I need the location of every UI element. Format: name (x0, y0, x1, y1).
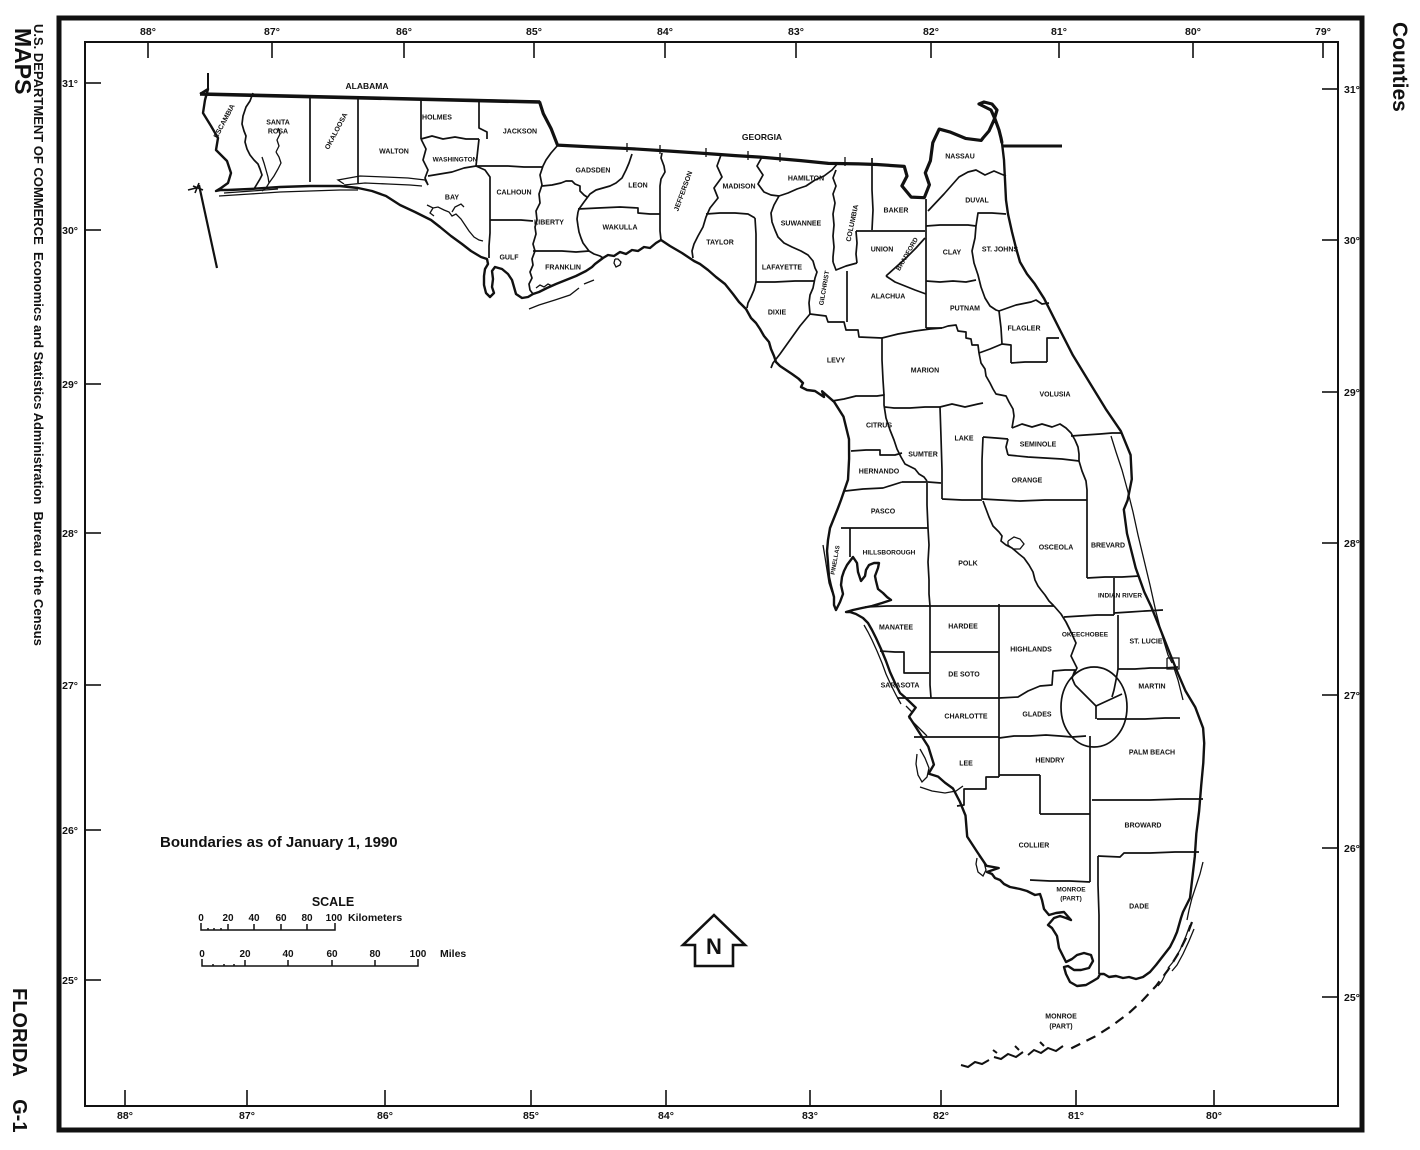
svg-text:WALTON: WALTON (379, 148, 409, 155)
svg-text:Kilometers: Kilometers (348, 912, 402, 924)
svg-text:87°: 87° (239, 1110, 255, 1122)
svg-text:86°: 86° (396, 26, 412, 38)
svg-text:HENDRY: HENDRY (1035, 757, 1065, 764)
svg-text:DADE: DADE (1129, 903, 1149, 910)
svg-text:N: N (706, 934, 722, 959)
svg-text:SUWANNEE: SUWANNEE (781, 220, 822, 227)
svg-text:LAKE: LAKE (954, 435, 973, 442)
svg-text:81°: 81° (1051, 26, 1067, 38)
svg-text:FLAGLER: FLAGLER (1007, 325, 1040, 332)
svg-text:84°: 84° (658, 1110, 674, 1122)
svg-text:20: 20 (239, 949, 251, 960)
svg-text:WASHINGTON: WASHINGTON (433, 156, 478, 163)
svg-text:UNION: UNION (871, 246, 894, 253)
svg-text:85°: 85° (526, 26, 542, 38)
svg-text:Boundaries as of January 1, 19: Boundaries as of January 1, 1990 (160, 834, 398, 851)
svg-text:80: 80 (301, 913, 313, 924)
svg-text:PASCO: PASCO (871, 508, 896, 515)
svg-text:(PART): (PART) (1049, 1023, 1072, 1030)
svg-text:GADSDEN: GADSDEN (575, 167, 610, 174)
svg-text:88°: 88° (117, 1110, 133, 1122)
svg-text:40: 40 (248, 913, 260, 924)
svg-text:ROSA: ROSA (268, 128, 288, 135)
svg-text:81°: 81° (1068, 1110, 1084, 1122)
svg-text:25°: 25° (1344, 992, 1360, 1004)
svg-text:TAYLOR: TAYLOR (706, 239, 734, 246)
svg-text:30°: 30° (62, 225, 78, 237)
svg-text:CALHOUN: CALHOUN (497, 189, 532, 196)
svg-text:20: 20 (222, 913, 234, 924)
svg-text:27°: 27° (62, 680, 78, 692)
svg-text:SARASOTA: SARASOTA (881, 682, 920, 689)
svg-text:OKEECHOBEE: OKEECHOBEE (1062, 631, 1109, 638)
svg-text:84°: 84° (657, 26, 673, 38)
svg-text:CLAY: CLAY (943, 249, 962, 256)
svg-text:88°: 88° (140, 26, 156, 38)
svg-text:85°: 85° (523, 1110, 539, 1122)
svg-text:LEON: LEON (628, 182, 647, 189)
svg-text:LIBERTY: LIBERTY (534, 219, 564, 226)
svg-text:ORANGE: ORANGE (1012, 477, 1043, 484)
svg-text:PALM BEACH: PALM BEACH (1129, 749, 1175, 756)
svg-text:SCALE: SCALE (312, 895, 354, 909)
svg-text:100: 100 (326, 913, 343, 924)
svg-text:SANTA: SANTA (266, 119, 290, 126)
svg-text:NASSAU: NASSAU (945, 153, 975, 160)
svg-text:86°: 86° (377, 1110, 393, 1122)
svg-text:GULF: GULF (499, 254, 519, 261)
svg-text:82°: 82° (923, 26, 939, 38)
svg-text:HIGHLANDS: HIGHLANDS (1010, 646, 1052, 653)
svg-text:ST. JOHNS: ST. JOHNS (982, 246, 1019, 253)
svg-text:0: 0 (199, 949, 205, 960)
svg-text:INDIAN RIVER: INDIAN RIVER (1098, 592, 1142, 599)
svg-text:80: 80 (369, 949, 381, 960)
svg-text:LEE: LEE (959, 760, 973, 767)
svg-text:MARION: MARION (911, 367, 939, 374)
svg-text:OSCEOLA: OSCEOLA (1039, 544, 1074, 551)
svg-text:82°: 82° (933, 1110, 949, 1122)
svg-text:31°: 31° (62, 78, 78, 90)
svg-text:DIXIE: DIXIE (768, 309, 787, 316)
svg-text:31°: 31° (1344, 84, 1360, 96)
svg-text:JACKSON: JACKSON (503, 128, 537, 135)
svg-text:27°: 27° (1344, 690, 1360, 702)
svg-text:0: 0 (198, 913, 204, 924)
svg-text:COLLIER: COLLIER (1019, 842, 1050, 849)
svg-text:80°: 80° (1206, 1110, 1222, 1122)
svg-text:BROWARD: BROWARD (1125, 822, 1162, 829)
svg-text:WAKULLA: WAKULLA (603, 224, 638, 231)
svg-text:CHARLOTTE: CHARLOTTE (944, 713, 987, 720)
svg-text:60: 60 (326, 949, 338, 960)
svg-text:DE SOTO: DE SOTO (948, 671, 980, 678)
svg-text:29°: 29° (1344, 387, 1360, 399)
svg-text:HARDEE: HARDEE (948, 623, 978, 630)
svg-text:ALABAMA: ALABAMA (346, 81, 389, 91)
svg-text:(PART): (PART) (1060, 895, 1082, 902)
svg-text:MANATEE: MANATEE (879, 624, 913, 631)
svg-text:87°: 87° (264, 26, 280, 38)
svg-text:HAMILTON: HAMILTON (788, 175, 824, 182)
svg-text:30°: 30° (1344, 235, 1360, 247)
svg-text:GLADES: GLADES (1022, 711, 1052, 718)
svg-text:PUTNAM: PUTNAM (950, 305, 980, 312)
svg-text:25°: 25° (62, 975, 78, 987)
svg-text:MONROE: MONROE (1056, 886, 1086, 893)
svg-text:LAFAYETTE: LAFAYETTE (762, 264, 803, 271)
svg-text:HERNANDO: HERNANDO (859, 468, 900, 475)
svg-text:DUVAL: DUVAL (965, 197, 989, 204)
svg-text:28°: 28° (1344, 538, 1360, 550)
svg-text:MARTIN: MARTIN (1138, 683, 1165, 690)
svg-text:MONROE: MONROE (1045, 1013, 1077, 1020)
svg-text:Miles: Miles (440, 948, 466, 960)
svg-text:CITRUS: CITRUS (866, 422, 892, 429)
svg-text:BAY: BAY (445, 194, 459, 201)
svg-text:MADISON: MADISON (722, 183, 755, 190)
svg-text:HOLMES: HOLMES (422, 114, 452, 121)
svg-text:79°: 79° (1315, 26, 1331, 38)
svg-text:FRANKLIN: FRANKLIN (545, 264, 581, 271)
svg-text:26°: 26° (1344, 843, 1360, 855)
svg-text:GEORGIA: GEORGIA (742, 132, 782, 142)
svg-text:ALACHUA: ALACHUA (871, 293, 906, 300)
svg-text:BREVARD: BREVARD (1091, 542, 1125, 549)
svg-text:100: 100 (410, 949, 427, 960)
svg-text:VOLUSIA: VOLUSIA (1039, 391, 1070, 398)
svg-text:ST. LUCIE: ST. LUCIE (1129, 638, 1162, 645)
svg-text:80°: 80° (1185, 26, 1201, 38)
svg-text:26°: 26° (62, 825, 78, 837)
svg-text:HILLSBOROUGH: HILLSBOROUGH (863, 549, 916, 556)
svg-text:SEMINOLE: SEMINOLE (1020, 441, 1057, 448)
svg-text:29°: 29° (62, 379, 78, 391)
svg-text:POLK: POLK (958, 560, 977, 567)
svg-text:28°: 28° (62, 528, 78, 540)
svg-text:LEVY: LEVY (827, 357, 846, 364)
svg-text:BAKER: BAKER (884, 207, 909, 214)
svg-text:60: 60 (275, 913, 287, 924)
svg-text:83°: 83° (788, 26, 804, 38)
svg-text:83°: 83° (802, 1110, 818, 1122)
svg-text:SUMTER: SUMTER (908, 451, 938, 458)
svg-text:40: 40 (282, 949, 294, 960)
